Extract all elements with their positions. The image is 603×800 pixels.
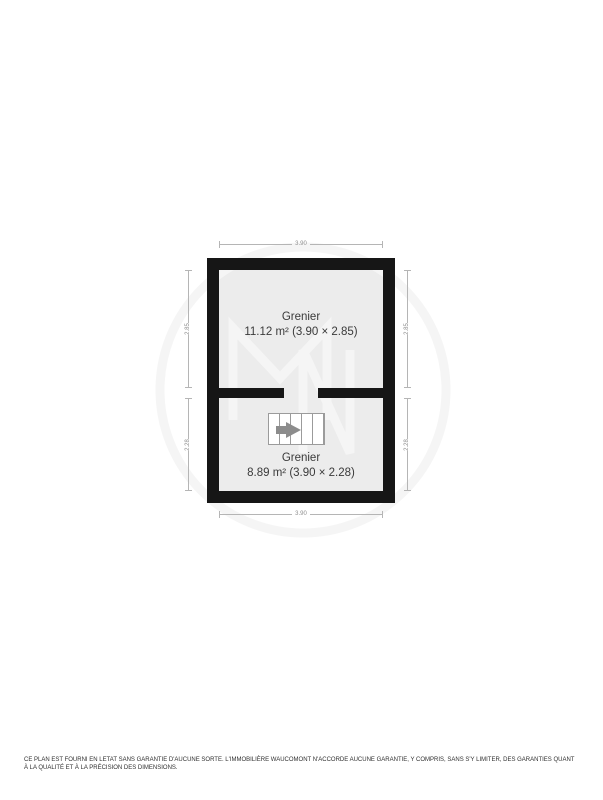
room-name: Grenier (219, 310, 383, 325)
room-name: Grenier (219, 451, 383, 466)
wall-bottom (207, 491, 395, 503)
wall-middle-right-segment (318, 388, 383, 398)
dimension-left-upper-height: 2.85 (182, 270, 194, 388)
stair-step (313, 414, 324, 444)
stair-step (302, 414, 313, 444)
dimension-right-lower-height: 2.28 (401, 398, 413, 491)
dimension-bottom-width: 3.90 (219, 508, 383, 520)
dimension-left-lower-height: 2.28 (182, 398, 194, 491)
dimension-label: 2.85 (404, 323, 410, 335)
dimension-top-width: 3.90 (219, 238, 383, 250)
wall-left (207, 258, 219, 503)
stairs-icon (268, 413, 325, 445)
dimension-label: 2.28 (404, 439, 410, 451)
room-area-dimensions: 11.12 m² (3.90 × 2.85) (219, 325, 383, 340)
dimension-right-upper-height: 2.85 (401, 270, 413, 388)
wall-right (383, 258, 395, 503)
floorplan-page: { "floorplan": { "rooms": [ { "name": "G… (0, 0, 603, 800)
wall-top (207, 258, 395, 270)
dimension-label: 2.28 (185, 439, 191, 451)
dimension-label: 2.85 (185, 323, 191, 335)
dimension-label: 3.90 (295, 511, 307, 517)
room-label-upper: Grenier 11.12 m² (3.90 × 2.85) (219, 310, 383, 340)
dimension-label: 3.90 (295, 241, 307, 247)
room-label-lower: Grenier 8.89 m² (3.90 × 2.28) (219, 451, 383, 481)
room-area-dimensions: 8.89 m² (3.90 × 2.28) (219, 466, 383, 481)
wall-middle-left-segment (219, 388, 284, 398)
footer-disclaimer: CE PLAN EST FOURNI EN LETAT SANS GARANTI… (24, 756, 580, 772)
arrow-right-icon (273, 421, 303, 439)
